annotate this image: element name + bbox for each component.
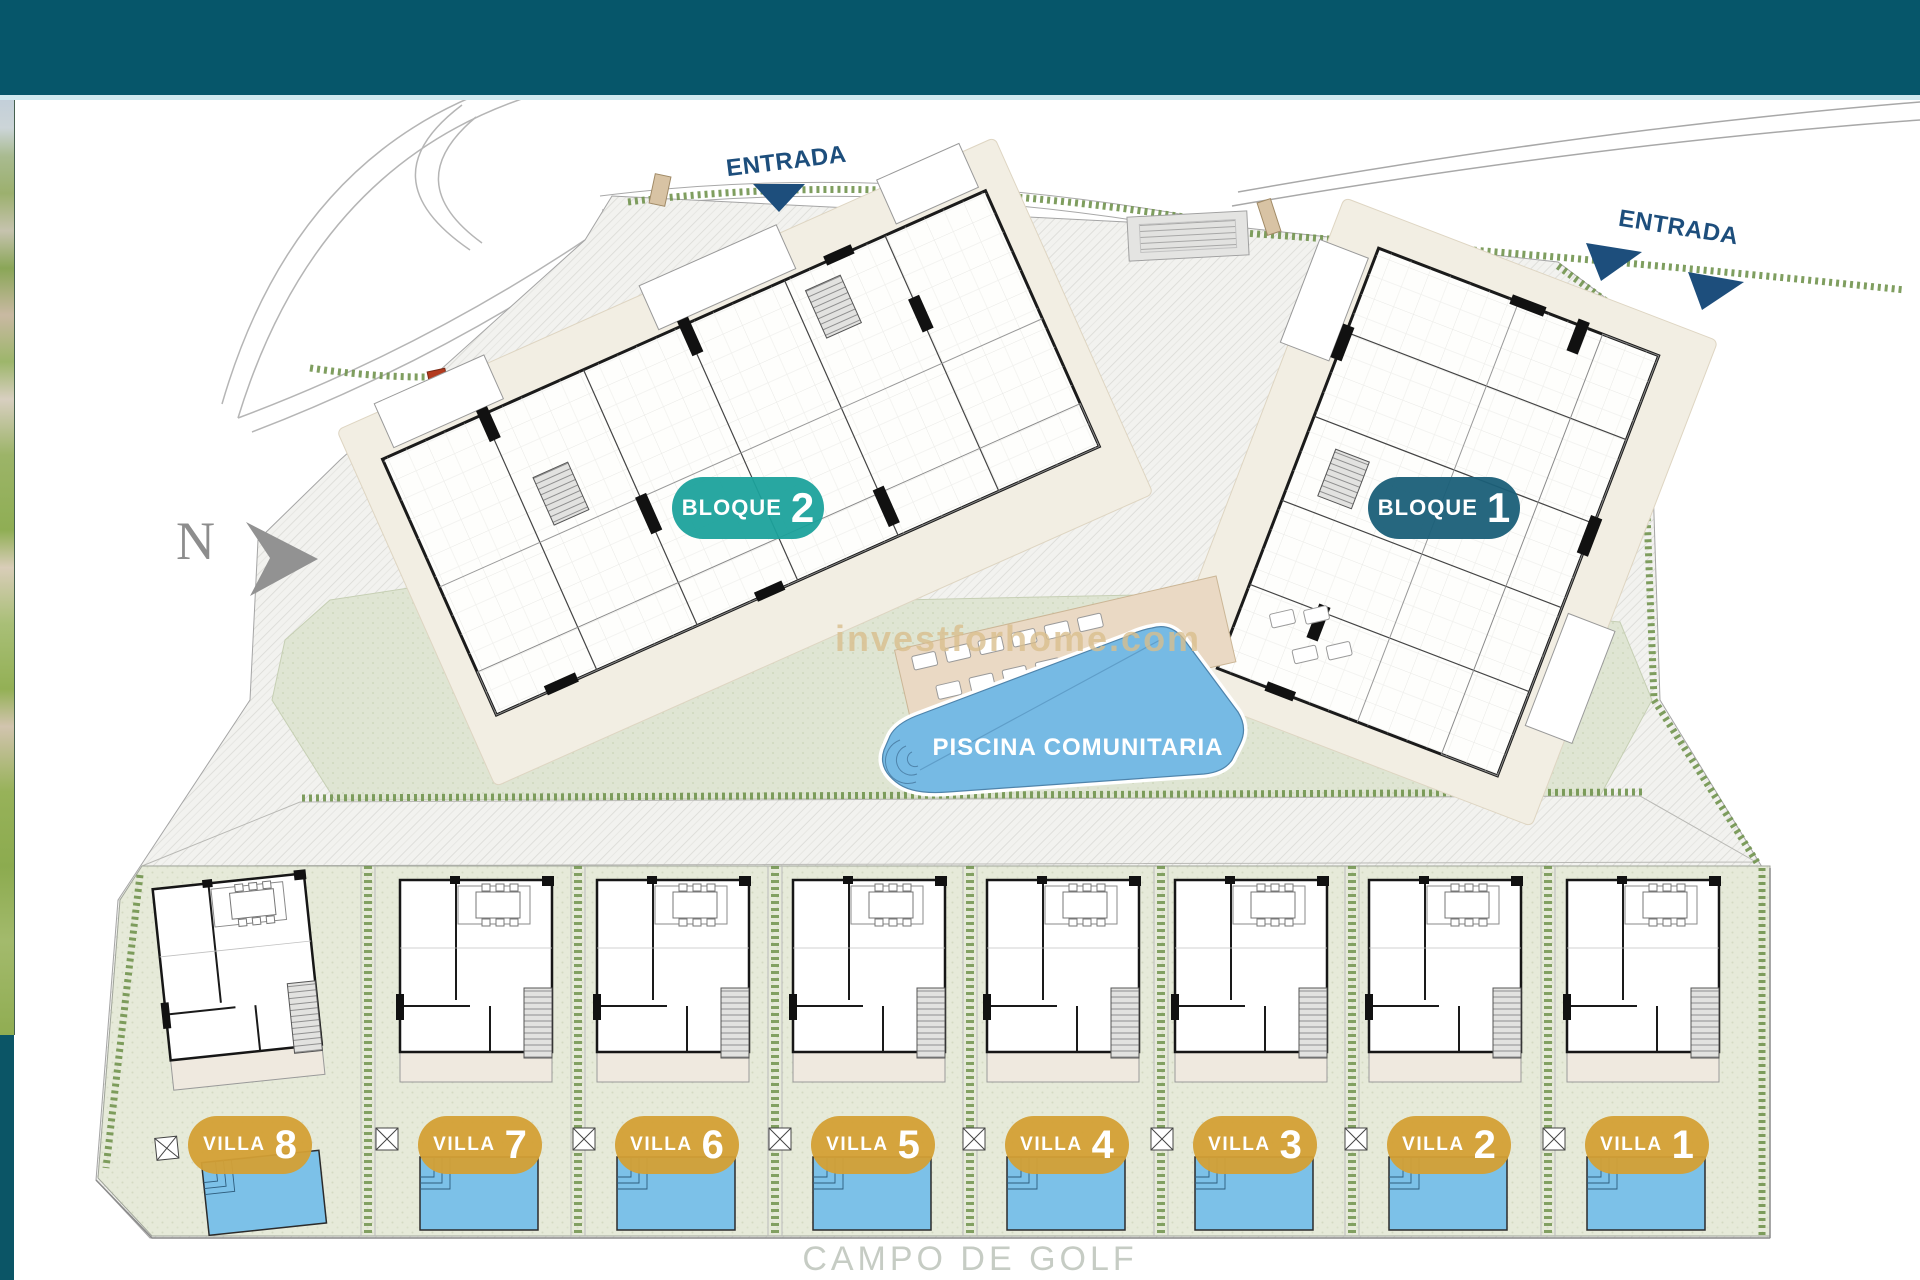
villa-7-number: 7 [505,1123,527,1168]
header-bar [0,0,1920,100]
bloque-1-number: 1 [1487,484,1510,532]
villa-2-number: 2 [1474,1123,1496,1168]
bloque-2-label: BLOQUE [682,495,782,521]
villa-6-number: 6 [702,1123,724,1168]
plot-marker [1543,1128,1565,1150]
villa-5-number: 5 [898,1123,920,1168]
plaza [1127,211,1249,261]
golf-area-label: CAMPO DE GOLF [760,1240,1180,1279]
north-indicator-label: N [176,510,215,572]
villa-2-badge[interactable]: VILLA 2 [1387,1116,1511,1174]
site-plan-page: N ENTRADA ENTRADA BLOQUE 2 BLOQUE 1 PISC… [0,0,1920,1280]
villa-4-badge[interactable]: VILLA 4 [1005,1116,1129,1174]
plot-marker [155,1136,179,1160]
villa-5-badge[interactable]: VILLA 5 [811,1116,935,1174]
villa-2-label: VILLA [1402,1134,1464,1156]
villa-5-label: VILLA [826,1134,888,1156]
villa-8-number: 8 [275,1123,297,1168]
bloque-2-badge[interactable]: BLOQUE 2 [672,477,824,539]
golf-photo-strip [0,100,15,1035]
villa-4-label: VILLA [1020,1134,1082,1156]
plot-marker [769,1128,791,1150]
villa-1-number: 1 [1672,1123,1694,1168]
villa-3-number: 3 [1280,1123,1302,1168]
arrow-right-entrance-1 [1586,243,1642,281]
left-teal-strip [0,1035,14,1280]
villa-3-badge[interactable]: VILLA 3 [1193,1116,1317,1174]
villa-1-label: VILLA [1600,1134,1662,1156]
plot-marker [963,1128,985,1150]
plot-marker [1345,1128,1367,1150]
villa-8-label: VILLA [203,1134,265,1156]
villa-6-badge[interactable]: VILLA 6 [615,1116,739,1174]
plot-marker [1151,1128,1173,1150]
villa-7-badge[interactable]: VILLA 7 [418,1116,542,1174]
villa-8-badge[interactable]: VILLA 8 [188,1116,312,1174]
plot-marker [376,1128,398,1150]
villa-1-badge[interactable]: VILLA 1 [1585,1116,1709,1174]
villa-4-number: 4 [1092,1123,1114,1168]
villa-3-label: VILLA [1208,1134,1270,1156]
plot-marker [573,1128,595,1150]
bloque-2-number: 2 [791,484,814,532]
villa-7-label: VILLA [433,1134,495,1156]
villa-6-label: VILLA [630,1134,692,1156]
arrow-right-entrance-2 [1688,272,1744,310]
bloque-1-label: BLOQUE [1378,495,1478,521]
bloque-1-badge[interactable]: BLOQUE 1 [1368,477,1520,539]
pool-label: PISCINA COMUNITARIA [918,734,1238,762]
watermark: investforhome.com [835,618,1201,660]
